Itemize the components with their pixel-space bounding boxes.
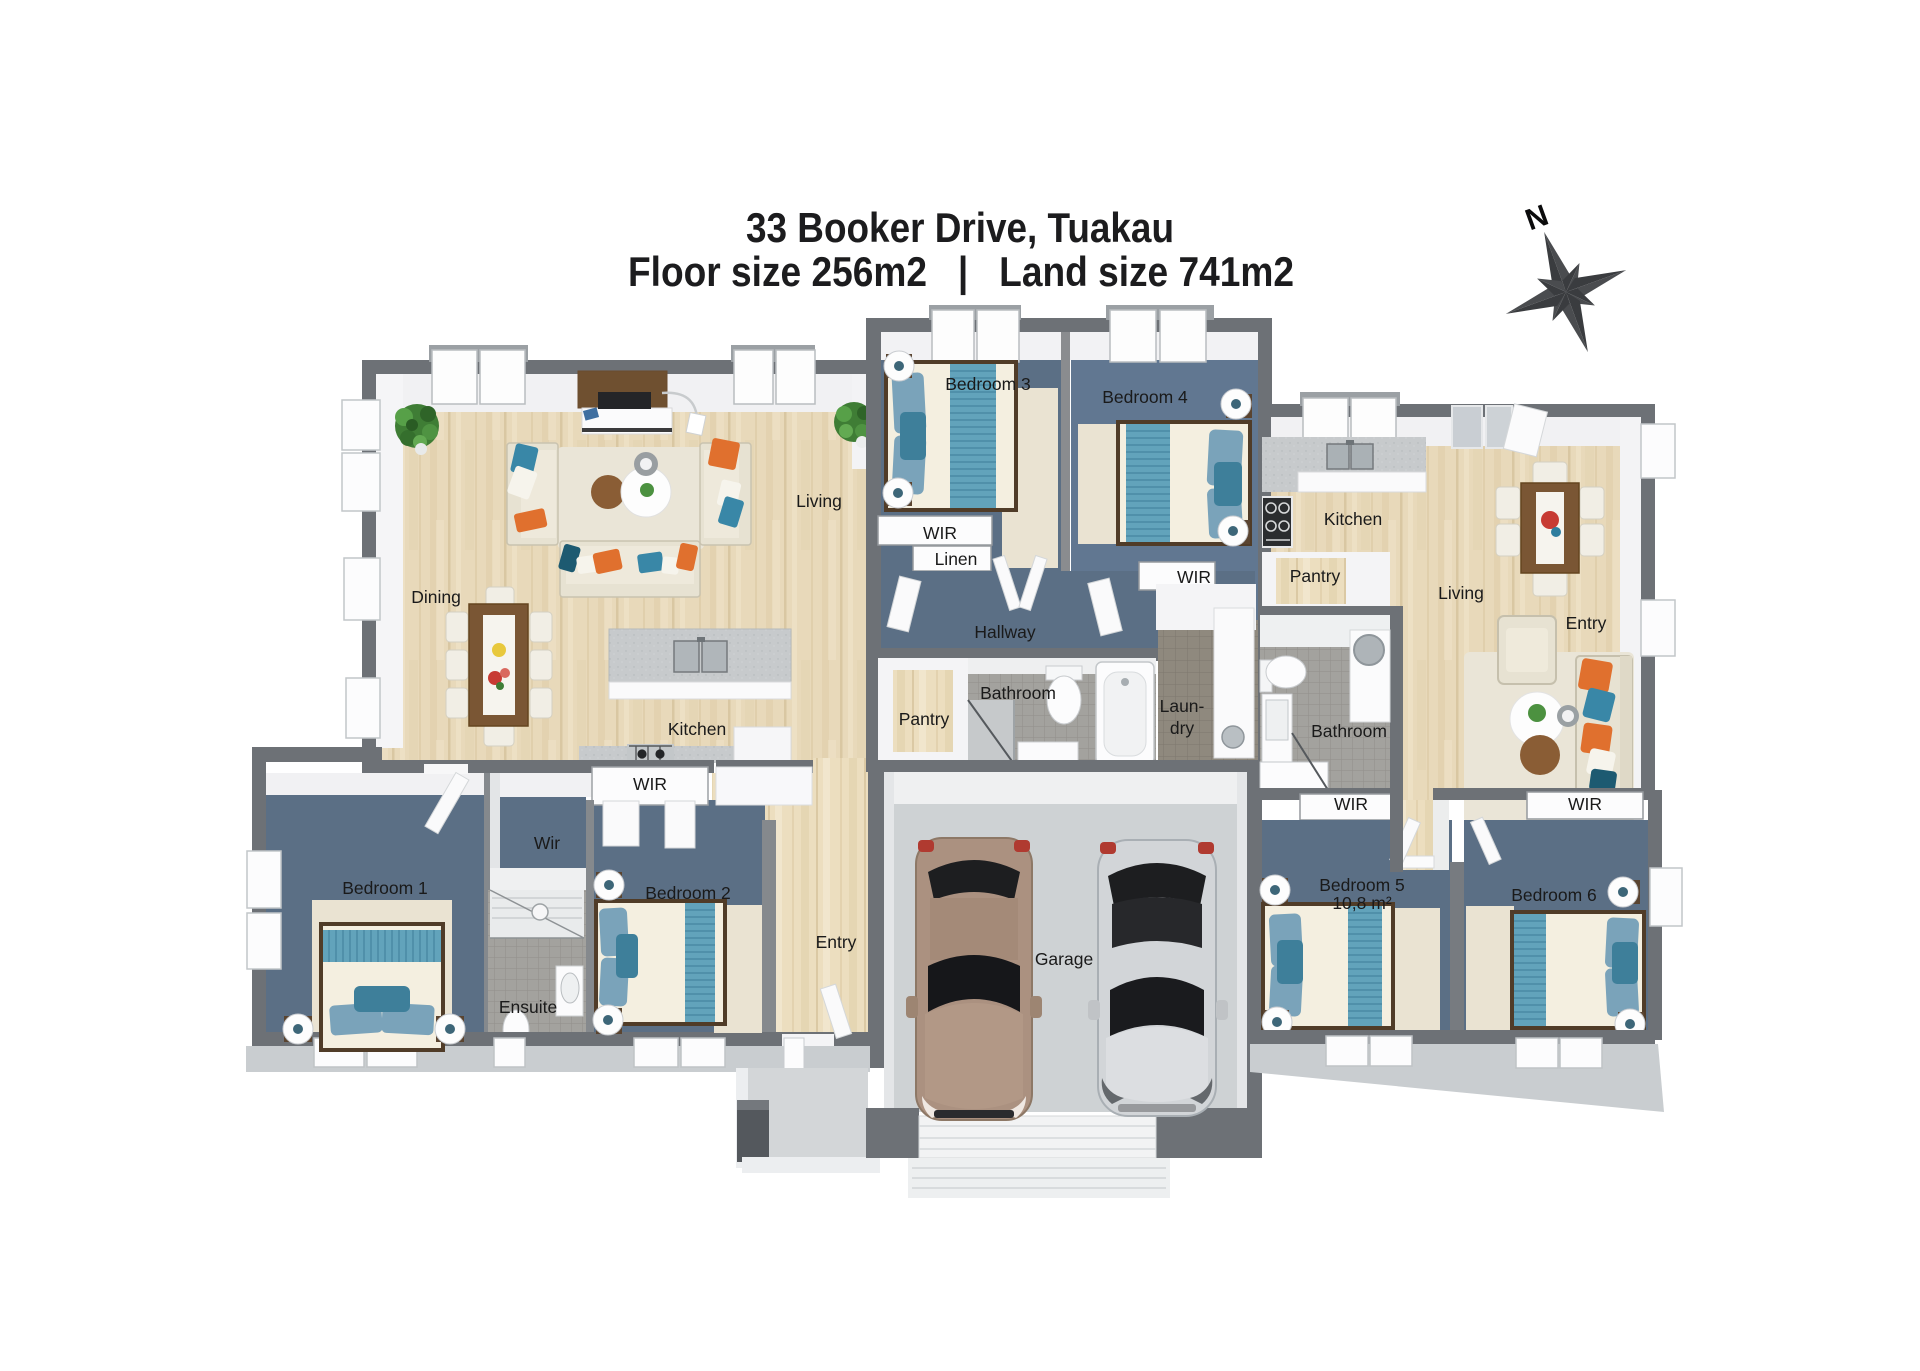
svg-text:Dining: Dining bbox=[411, 587, 461, 607]
svg-text:Floor size 256m2 | Land si: Floor size 256m2 | Land size 741m2 bbox=[628, 248, 1294, 296]
svg-text:33 Booker Drive, Tuakau: 33 Booker Drive, Tuakau bbox=[746, 204, 1174, 251]
svg-text:Bedroom 3: Bedroom 3 bbox=[945, 374, 1031, 394]
svg-text:dry: dry bbox=[1170, 718, 1195, 738]
svg-text:Bathroom: Bathroom bbox=[1311, 721, 1387, 741]
svg-text:10,8 m²: 10,8 m² bbox=[1332, 893, 1391, 913]
svg-text:Bedroom 4: Bedroom 4 bbox=[1102, 387, 1188, 407]
svg-text:Entry: Entry bbox=[816, 932, 857, 952]
svg-text:Bedroom 6: Bedroom 6 bbox=[1511, 885, 1597, 905]
svg-text:Garage: Garage bbox=[1035, 949, 1093, 969]
svg-text:Laun-: Laun- bbox=[1160, 696, 1205, 716]
svg-text:Ensuite: Ensuite bbox=[499, 997, 557, 1017]
svg-text:Kitchen: Kitchen bbox=[668, 719, 726, 739]
svg-text:Pantry: Pantry bbox=[1290, 566, 1341, 586]
svg-text:WIR: WIR bbox=[923, 523, 957, 543]
svg-text:Bathroom: Bathroom bbox=[980, 683, 1056, 703]
svg-text:Hallway: Hallway bbox=[974, 622, 1036, 642]
svg-text:Kitchen: Kitchen bbox=[1324, 509, 1382, 529]
svg-text:Bedroom 1: Bedroom 1 bbox=[342, 878, 428, 898]
svg-text:Linen: Linen bbox=[935, 549, 978, 569]
svg-text:Living: Living bbox=[1438, 583, 1484, 603]
svg-text:WIR: WIR bbox=[1568, 794, 1602, 814]
svg-text:Bedroom 2: Bedroom 2 bbox=[645, 883, 731, 903]
svg-text:Entry: Entry bbox=[1566, 613, 1607, 633]
svg-text:WIR: WIR bbox=[633, 774, 667, 794]
svg-text:Pantry: Pantry bbox=[899, 709, 950, 729]
svg-text:Bedroom 5: Bedroom 5 bbox=[1319, 875, 1405, 895]
svg-text:Wir: Wir bbox=[534, 833, 560, 853]
svg-text:WIR: WIR bbox=[1334, 794, 1368, 814]
svg-text:Living: Living bbox=[796, 491, 842, 511]
